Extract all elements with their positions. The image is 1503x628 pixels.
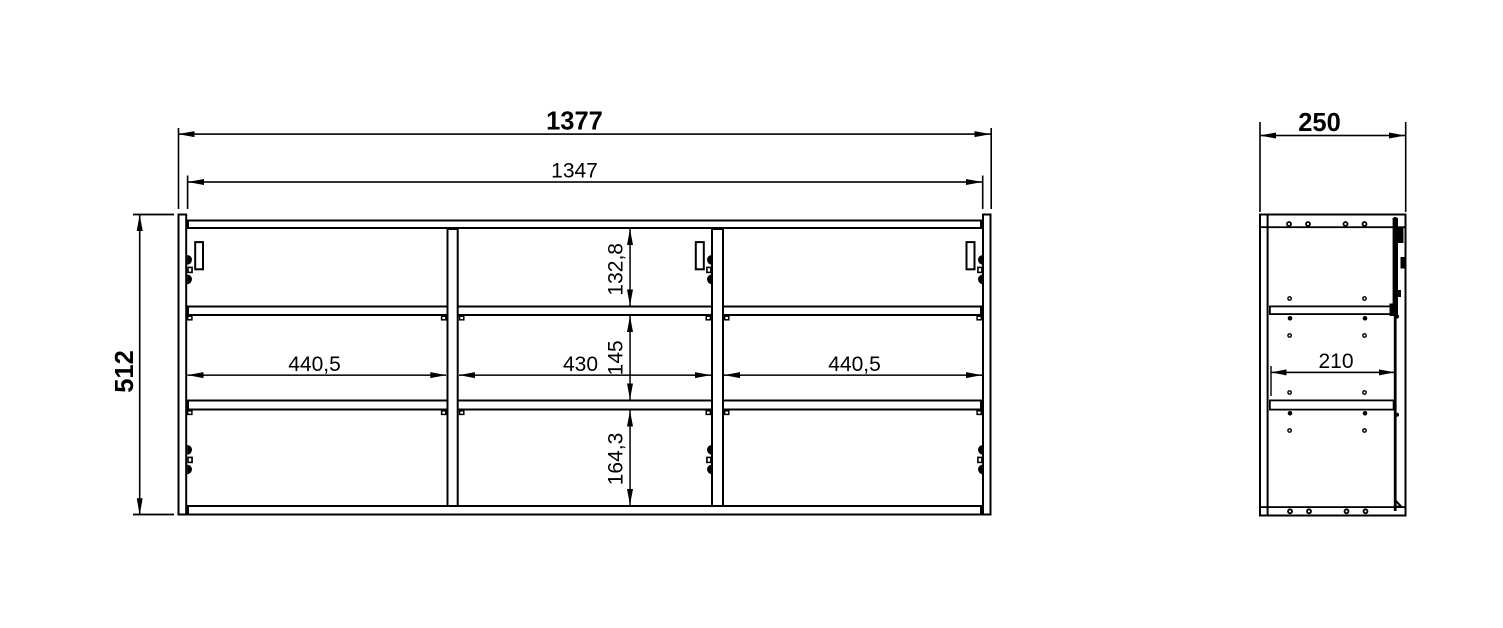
svg-text:132,8: 132,8 xyxy=(605,243,628,296)
svg-text:430: 430 xyxy=(563,353,598,376)
svg-text:1377: 1377 xyxy=(546,108,603,136)
svg-text:145: 145 xyxy=(605,340,628,375)
svg-text:210: 210 xyxy=(1318,350,1353,373)
svg-text:440,5: 440,5 xyxy=(288,353,341,376)
svg-text:250: 250 xyxy=(1298,109,1341,137)
svg-text:512: 512 xyxy=(111,350,139,393)
svg-text:1347: 1347 xyxy=(551,159,598,182)
svg-text:164,3: 164,3 xyxy=(605,433,628,486)
svg-text:440,5: 440,5 xyxy=(828,353,881,376)
